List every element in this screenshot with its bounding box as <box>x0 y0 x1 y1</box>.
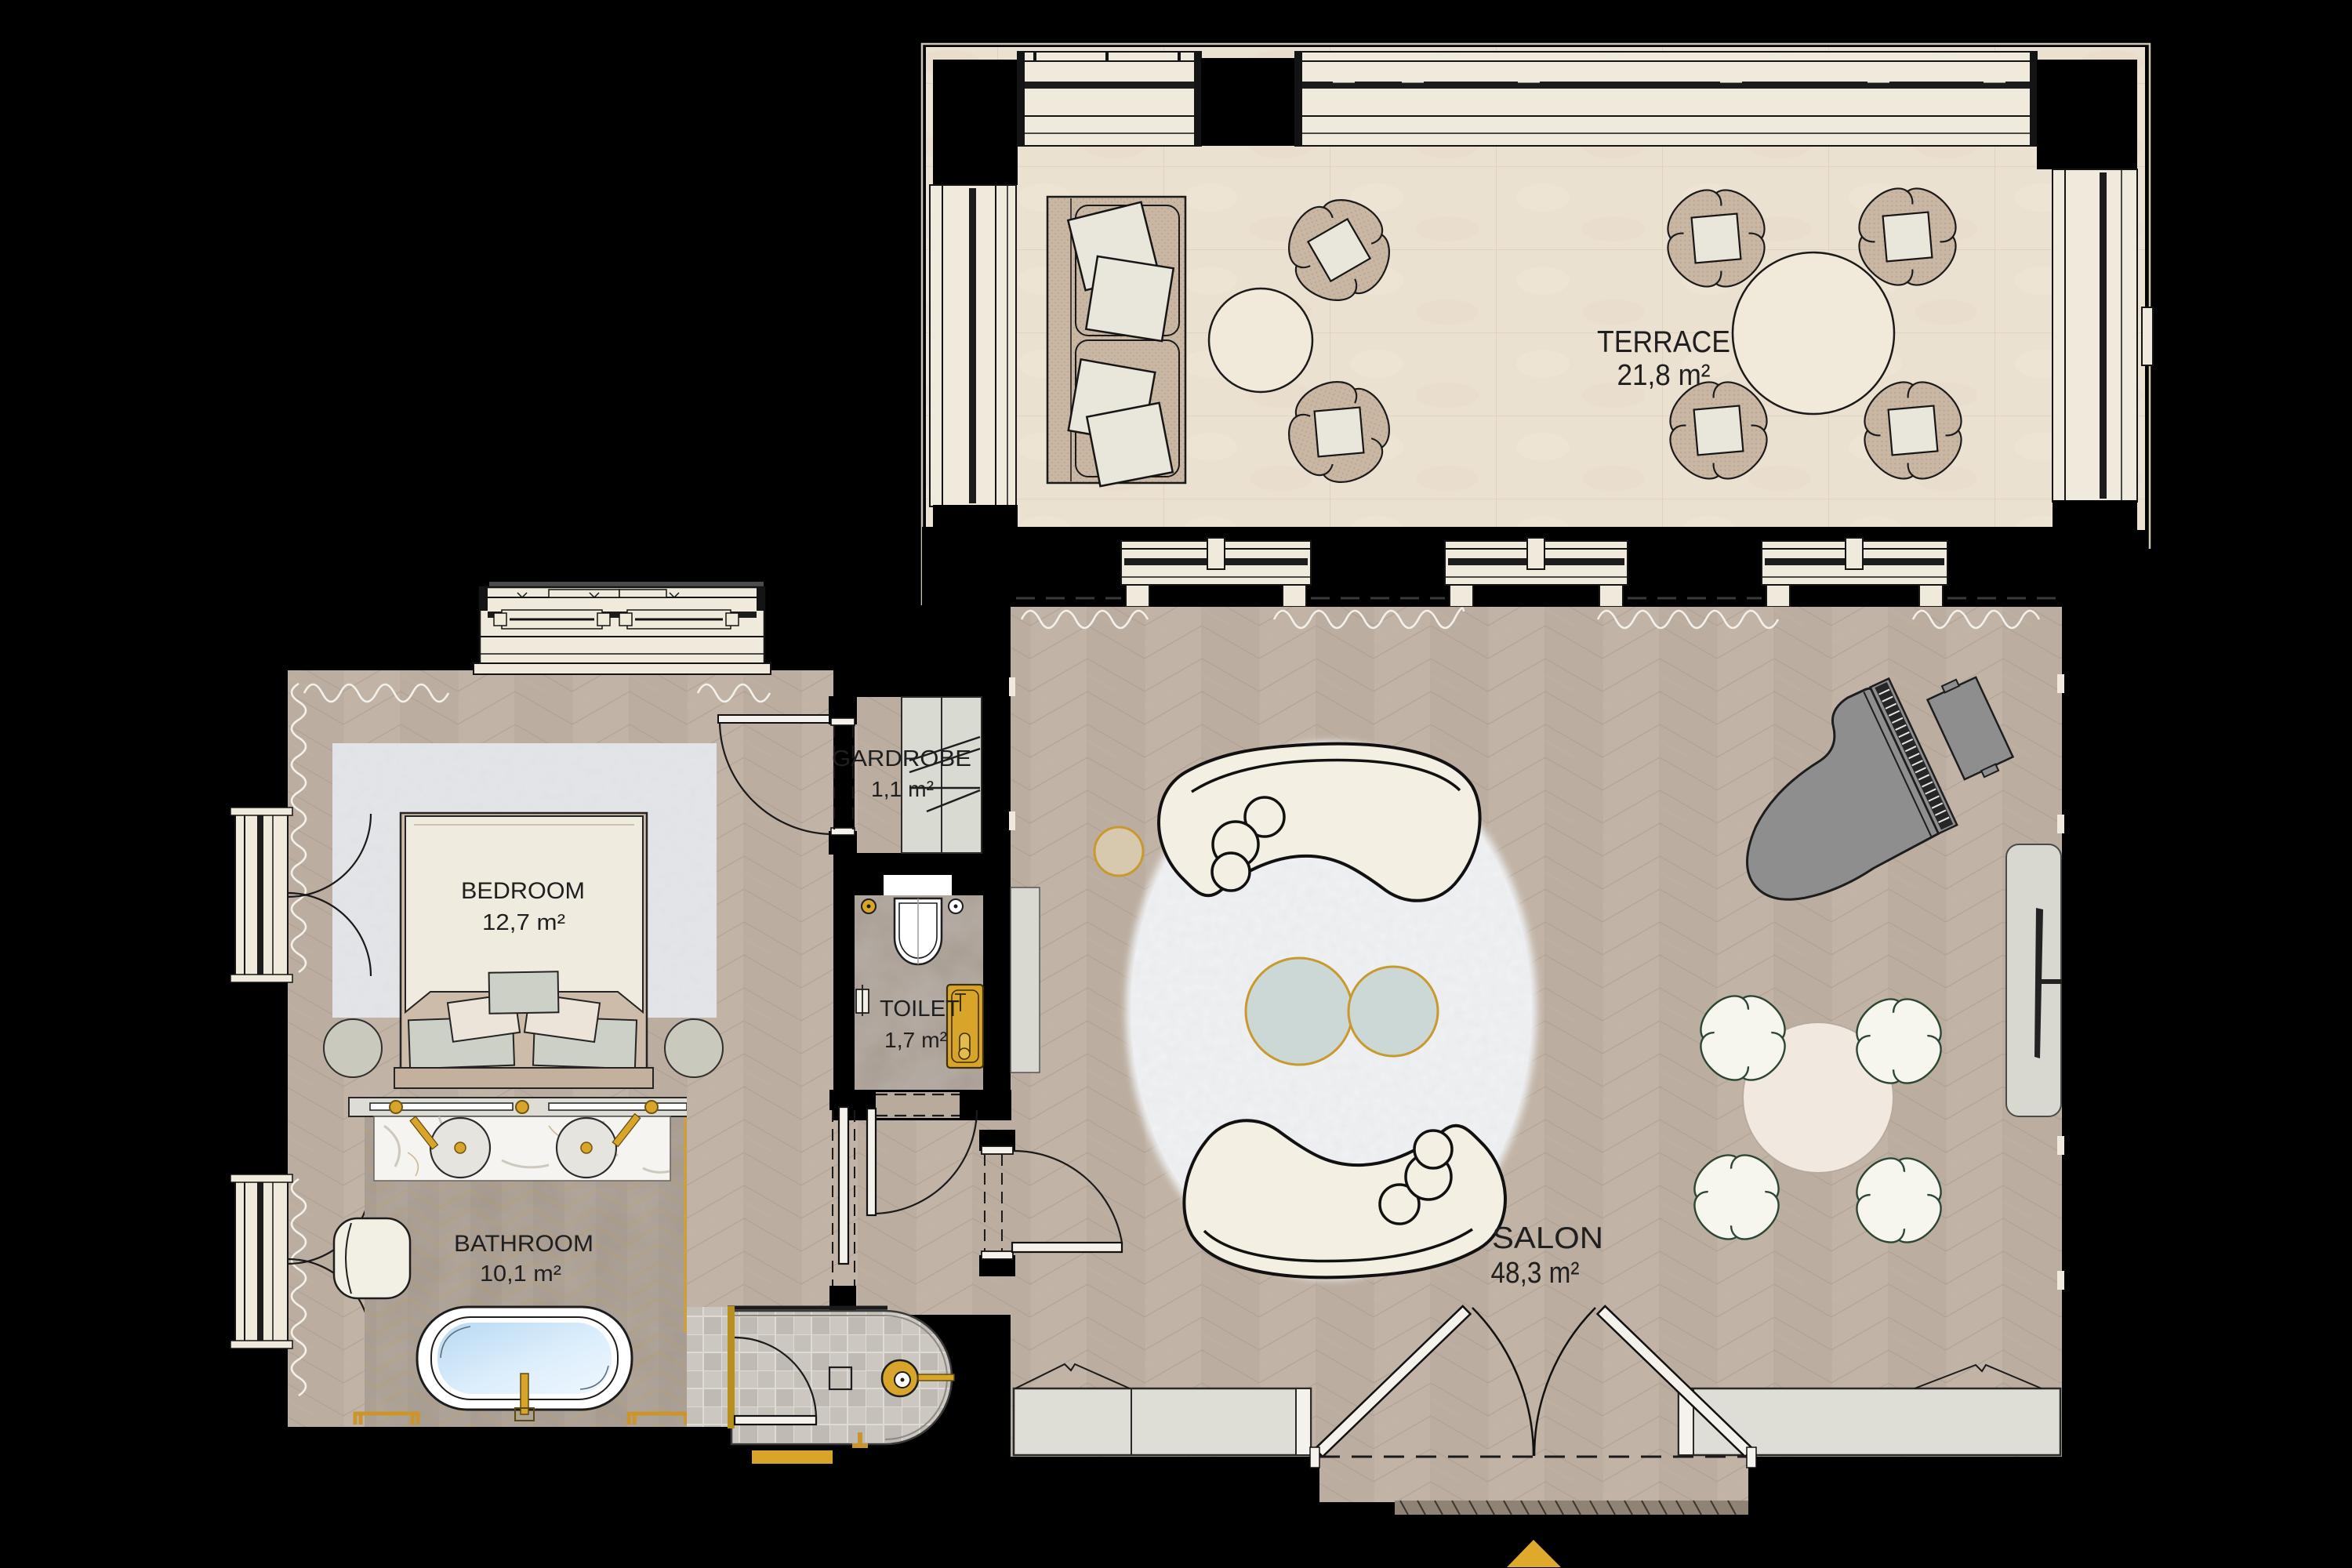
svg-text:12,7 m²: 12,7 m² <box>482 910 565 935</box>
svg-text:SALON: SALON <box>1492 1221 1603 1255</box>
svg-text:21,8 m²: 21,8 m² <box>1617 359 1711 392</box>
svg-text:48,3 m²: 48,3 m² <box>1491 1257 1580 1290</box>
svg-text:GARDROBE: GARDROBE <box>832 746 971 771</box>
svg-text:10,1 m²: 10,1 m² <box>480 1261 561 1287</box>
svg-text:1,1 m²: 1,1 m² <box>871 777 934 801</box>
svg-text:1,7 m²: 1,7 m² <box>884 1028 947 1052</box>
svg-text:BEDROOM: BEDROOM <box>461 878 585 904</box>
svg-text:BATHROOM: BATHROOM <box>454 1231 593 1257</box>
svg-text:TOILET: TOILET <box>880 996 960 1022</box>
svg-text:TERRACE: TERRACE <box>1597 325 1730 359</box>
